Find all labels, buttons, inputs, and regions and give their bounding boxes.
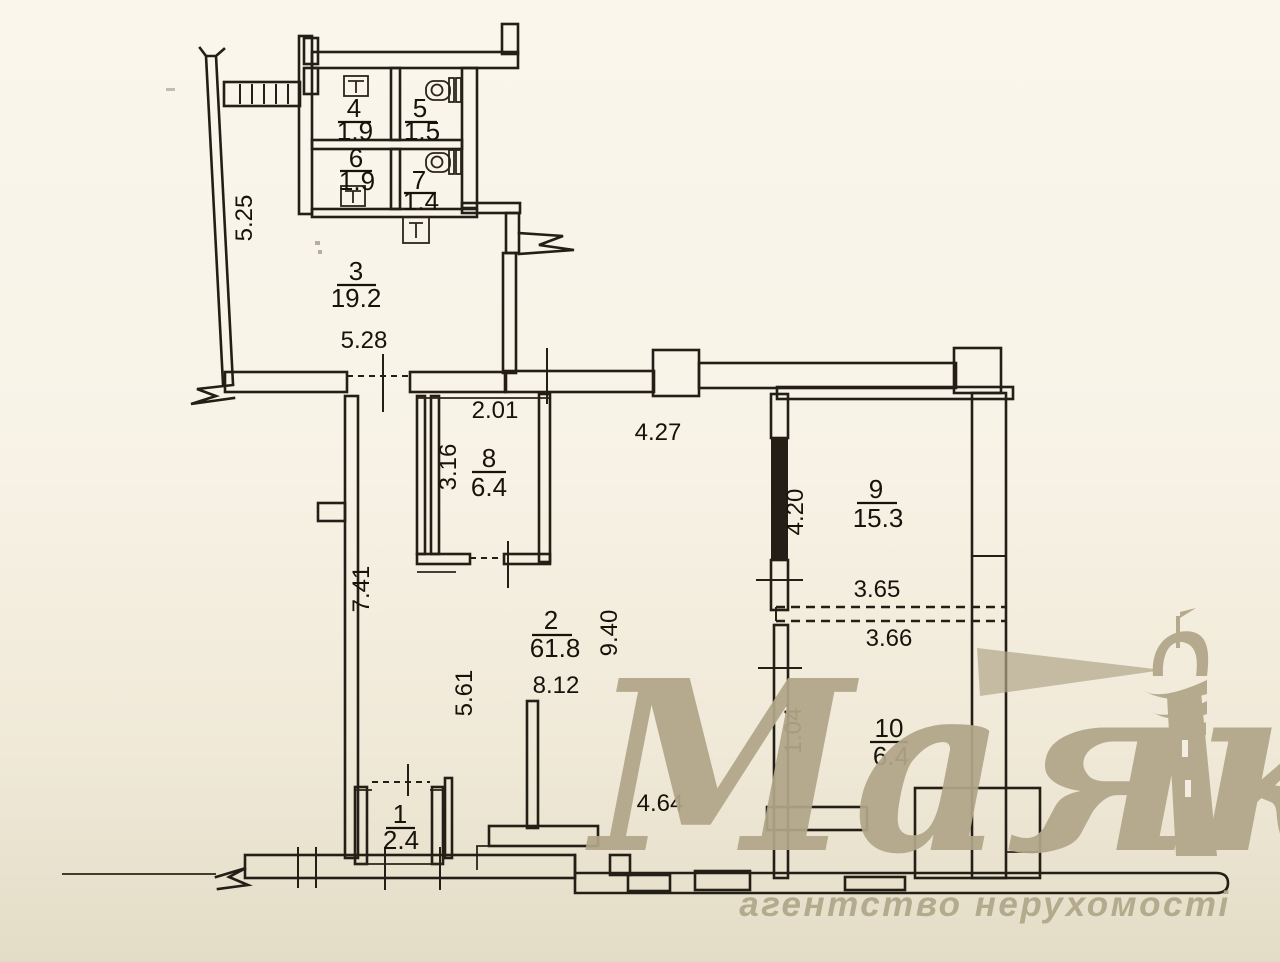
water-heater: [403, 217, 429, 243]
wall-segment: [445, 778, 452, 858]
partition-stub: [527, 701, 538, 828]
wall-segment: [506, 213, 519, 253]
wall-segment: [417, 396, 425, 554]
wall-segment: [477, 846, 489, 870]
wall-segment: [432, 787, 443, 864]
wall-segment: [225, 372, 347, 392]
porch-hatching: [240, 84, 288, 104]
room-6-area: 1.9: [339, 166, 375, 196]
scan-speck: [166, 88, 175, 91]
floor-plan-drawing: 4 1.9 5 1.5 6 1.9 7 1.4 3 19.2 8 6.4 9 1…: [0, 0, 1280, 962]
wall-segment: [391, 149, 400, 209]
wall-segment: [771, 560, 788, 610]
toilet-room5: [426, 78, 461, 102]
pilaster: [318, 503, 345, 521]
wall-segment: [312, 209, 477, 217]
dim-room3-height: 5.25: [231, 195, 258, 242]
dim-room9-height: 4.20: [782, 489, 809, 536]
scanned-floor-plan-page: 4 1.9 5 1.5 6 1.9 7 1.4 3 19.2 8 6.4 9 1…: [0, 0, 1280, 962]
wall-segment: [771, 394, 788, 438]
room-8-area: 6.4: [471, 472, 507, 502]
room-1-area: 2.4: [383, 825, 419, 855]
entrance-wall: [245, 855, 575, 878]
room-2-area: 61.8: [530, 633, 581, 663]
dim-room9-width: 3.65: [854, 576, 901, 603]
dim-hall-left-height: 7.41: [348, 566, 375, 613]
scan-speck: [315, 241, 320, 245]
wall-break-symbol: [519, 233, 574, 254]
dim-hall-width: 8.12: [533, 672, 580, 699]
wall-break-symbol: [191, 385, 234, 404]
wall-segment: [505, 371, 654, 392]
wall-segment: [539, 394, 550, 562]
room-5-area: 1.5: [404, 116, 440, 146]
wall-segment: [502, 24, 518, 54]
room-4-area: 1.9: [337, 116, 373, 146]
wall-segment: [503, 253, 516, 373]
watermark-tagline: агентство нерухомості: [739, 885, 1231, 924]
room-3-area: 19.2: [331, 283, 382, 313]
dim-corridor-top-width: 4.27: [635, 419, 682, 446]
pillar: [653, 350, 699, 396]
room-2-number: 2: [544, 605, 558, 635]
counter: [489, 826, 598, 846]
watermark: Маяк агентство нерухомості: [585, 608, 1280, 924]
wall-segment: [391, 68, 400, 140]
wall-segment: [312, 52, 518, 68]
dim-room8-width: 2.01: [472, 397, 519, 424]
scan-speck: [318, 250, 322, 254]
toilet-room7: [426, 150, 461, 174]
wall-segment: [200, 48, 233, 384]
dim-room8-height: 3.16: [435, 444, 462, 491]
room-8-number: 8: [482, 443, 496, 473]
wall-segment: [410, 372, 506, 392]
dim-hall-inner-height: 5.61: [451, 670, 478, 717]
dim-room3-width: 5.28: [341, 327, 388, 354]
wall-segment: [699, 363, 956, 388]
room-9-area: 15.3: [853, 503, 904, 533]
watermark-brand: Маяк: [585, 628, 1280, 906]
wall-break-symbol: [216, 868, 248, 889]
wall-segment: [462, 68, 477, 208]
room-9-number: 9: [869, 474, 883, 504]
wall-segment: [417, 554, 470, 564]
room-7-area: 1.4: [403, 186, 439, 216]
room-3-number: 3: [349, 256, 363, 286]
